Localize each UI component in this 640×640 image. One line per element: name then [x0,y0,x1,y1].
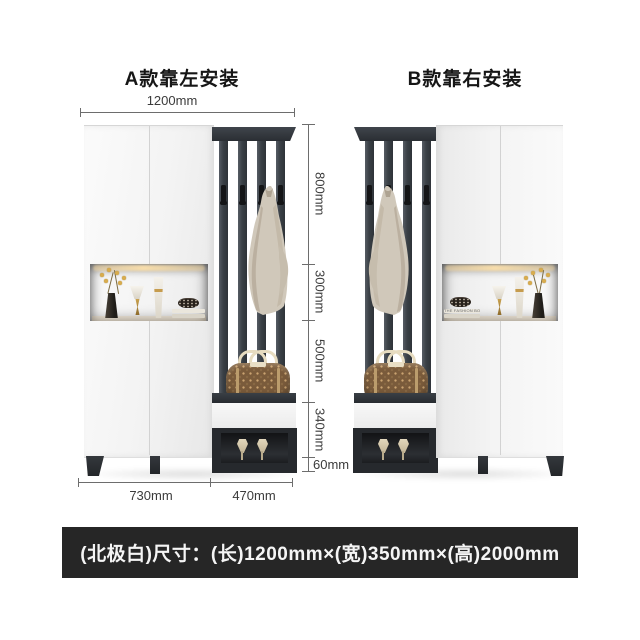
unit-b-door-seam-top [500,126,501,264]
unit-b-door-seam-bottom [500,321,501,455]
segment-340mm-label: 340mm [311,402,329,457]
size-caption-bar: (北极白)尺寸：(长)1200mm×(宽)350mm×(高)2000mm [62,527,578,578]
height-dim-line [308,124,309,471]
unit-a-shoe-compartment [212,428,297,473]
coat-hook [424,185,429,204]
unit-b-display-niche: THE FASHION BOOK [442,264,558,321]
coat-hook [221,185,226,204]
segment-60mm-label: 60mm [313,457,357,472]
dark-vase [104,293,119,318]
unit-a-rack-top-shelf [212,127,296,141]
unit-a-bench-top [212,393,296,403]
white-vase [512,277,527,318]
model-b-title: B款靠右安装 [357,64,573,91]
book-stack: THE FASHION BOOK [444,308,480,318]
unit-a-drawer [212,403,296,429]
segment-300mm-label: 300mm [311,264,329,320]
bottom-730mm-label: 730mm [106,488,196,503]
white-vase [151,277,166,318]
model-a-title: A款靠左安装 [74,64,290,91]
unit-a-door-seam-bottom [149,321,150,455]
round-trinket-box [178,298,199,308]
book-spine-title: THE FASHION BOOK [444,309,480,313]
book-stack [172,308,205,318]
segment-800mm-label: 800mm [311,124,329,264]
unit-b-drawer [354,403,438,429]
hanging-coat [364,186,414,316]
cabinet-foot [150,456,160,474]
segment-500mm-label: 500mm [311,320,329,402]
cabinet-foot [478,456,488,474]
unit-b-bench-top [354,393,438,403]
round-trinket-box [450,297,471,307]
bottom-470mm-label: 470mm [209,488,299,503]
hanging-coat [243,186,293,316]
furniture-dimension-diagram: A款靠左安装 B款靠右安装 1200mm [0,0,640,640]
bottom-dim-line [78,482,293,483]
top-width-label: 1200mm [105,93,239,108]
unit-a-display-niche [90,264,208,321]
dark-vase [531,293,546,318]
unit-b-shoe-compartment [353,428,438,473]
unit-a-door-seam-top [149,126,150,264]
unit-b-rack-top-shelf [354,127,438,141]
top-dim-line [80,112,295,113]
size-caption-text: (北极白)尺寸：(长)1200mm×(宽)350mm×(高)2000mm [80,539,559,566]
